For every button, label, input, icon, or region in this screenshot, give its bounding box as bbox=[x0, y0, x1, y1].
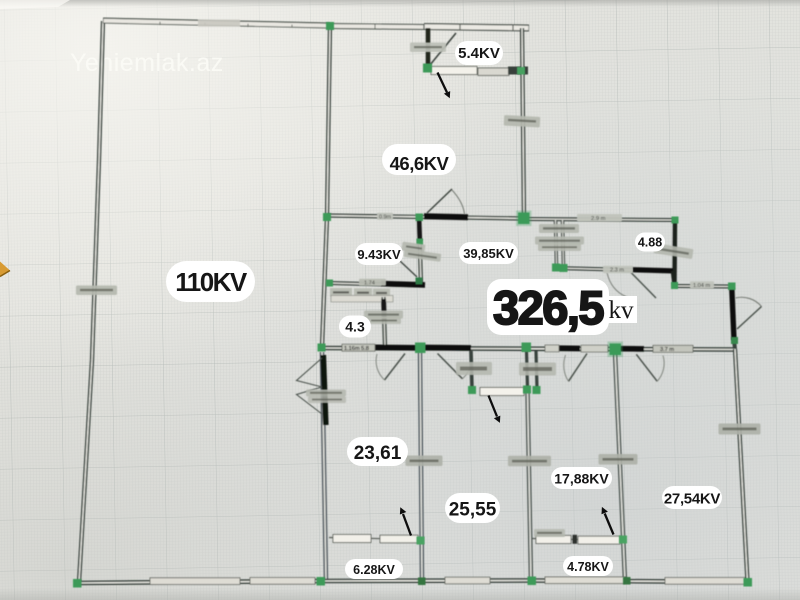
svg-text:1.16m 5.8: 1.16m 5.8 bbox=[344, 346, 369, 352]
svg-text:326,5: 326,5 bbox=[493, 281, 603, 334]
svg-text:3.7 m: 3.7 m bbox=[660, 347, 674, 353]
svg-text:9.43KV: 9.43KV bbox=[357, 247, 401, 262]
svg-text:25,55: 25,55 bbox=[449, 500, 497, 521]
svg-text:1.04 m: 1.04 m bbox=[693, 283, 710, 289]
svg-text:4.88: 4.88 bbox=[638, 236, 662, 250]
svg-text:Yeniemlak.az: Yeniemlak.az bbox=[70, 49, 224, 77]
svg-text:23,61: 23,61 bbox=[354, 443, 402, 464]
svg-text:2.9 m: 2.9 m bbox=[591, 216, 606, 222]
svg-text:27,54KV: 27,54KV bbox=[664, 491, 721, 508]
svg-text:6.28KV: 6.28KV bbox=[353, 563, 395, 577]
svg-text:kv: kv bbox=[609, 297, 635, 324]
svg-text:17,88KV: 17,88KV bbox=[554, 471, 609, 487]
svg-text:4.78KV: 4.78KV bbox=[567, 560, 609, 574]
svg-text:39,85KV: 39,85KV bbox=[463, 246, 514, 261]
svg-text:2.3 m: 2.3 m bbox=[610, 268, 624, 274]
svg-text:0.9m: 0.9m bbox=[379, 214, 391, 220]
svg-text:110KV: 110KV bbox=[175, 267, 248, 297]
svg-text:5.4KV: 5.4KV bbox=[458, 45, 500, 62]
svg-text:4.3: 4.3 bbox=[345, 319, 365, 335]
svg-text:1.74: 1.74 bbox=[364, 281, 375, 287]
svg-text:46,6KV: 46,6KV bbox=[390, 153, 450, 174]
